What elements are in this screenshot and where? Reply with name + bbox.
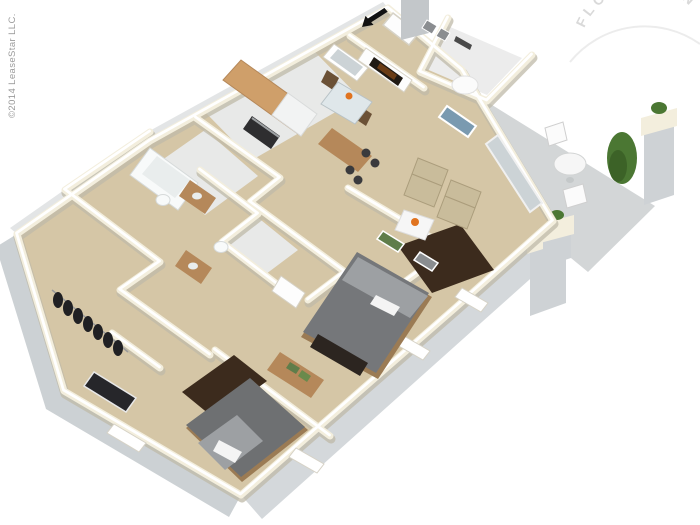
hanging-clothes (103, 332, 113, 348)
bar-stool (354, 176, 363, 185)
chimney-column (401, 0, 429, 40)
hanging-clothes (63, 300, 73, 316)
copyright-credit: ©2014 LeaseStar LLC. (7, 13, 18, 118)
toilet-2 (214, 242, 228, 253)
patio-chair-1 (545, 122, 567, 146)
watermark-label: FLOOR PLAN (572, 0, 700, 30)
patio-table-base (566, 177, 574, 183)
floor-plan-rendering: FLOOR PLAN ©2014 LeaseStar LLC. (0, 0, 700, 525)
bar-stool (362, 149, 371, 158)
sink-2 (188, 263, 198, 270)
patio-table (554, 153, 586, 175)
hanging-clothes (113, 340, 123, 356)
hanging-clothes (83, 316, 93, 332)
den-table (452, 76, 478, 94)
hanging-clothes (73, 308, 83, 324)
floor-plan-watermark: FLOOR PLAN (570, 0, 700, 62)
coffee-table-flowers (411, 218, 419, 226)
hanging-clothes (93, 324, 103, 340)
bar-stool (371, 159, 380, 168)
hanging-clothes (53, 292, 63, 308)
sink-1 (192, 193, 202, 200)
patio-shrub-shade (609, 150, 627, 182)
toilet-1 (156, 195, 170, 206)
bar-stool (346, 166, 355, 175)
floor-plan-page: FLOOR PLAN ©2014 LeaseStar LLC. (0, 0, 700, 525)
watermark-ring (570, 26, 700, 62)
planter-plant-right (651, 102, 667, 114)
dining-centerpiece-flowers (346, 93, 353, 100)
